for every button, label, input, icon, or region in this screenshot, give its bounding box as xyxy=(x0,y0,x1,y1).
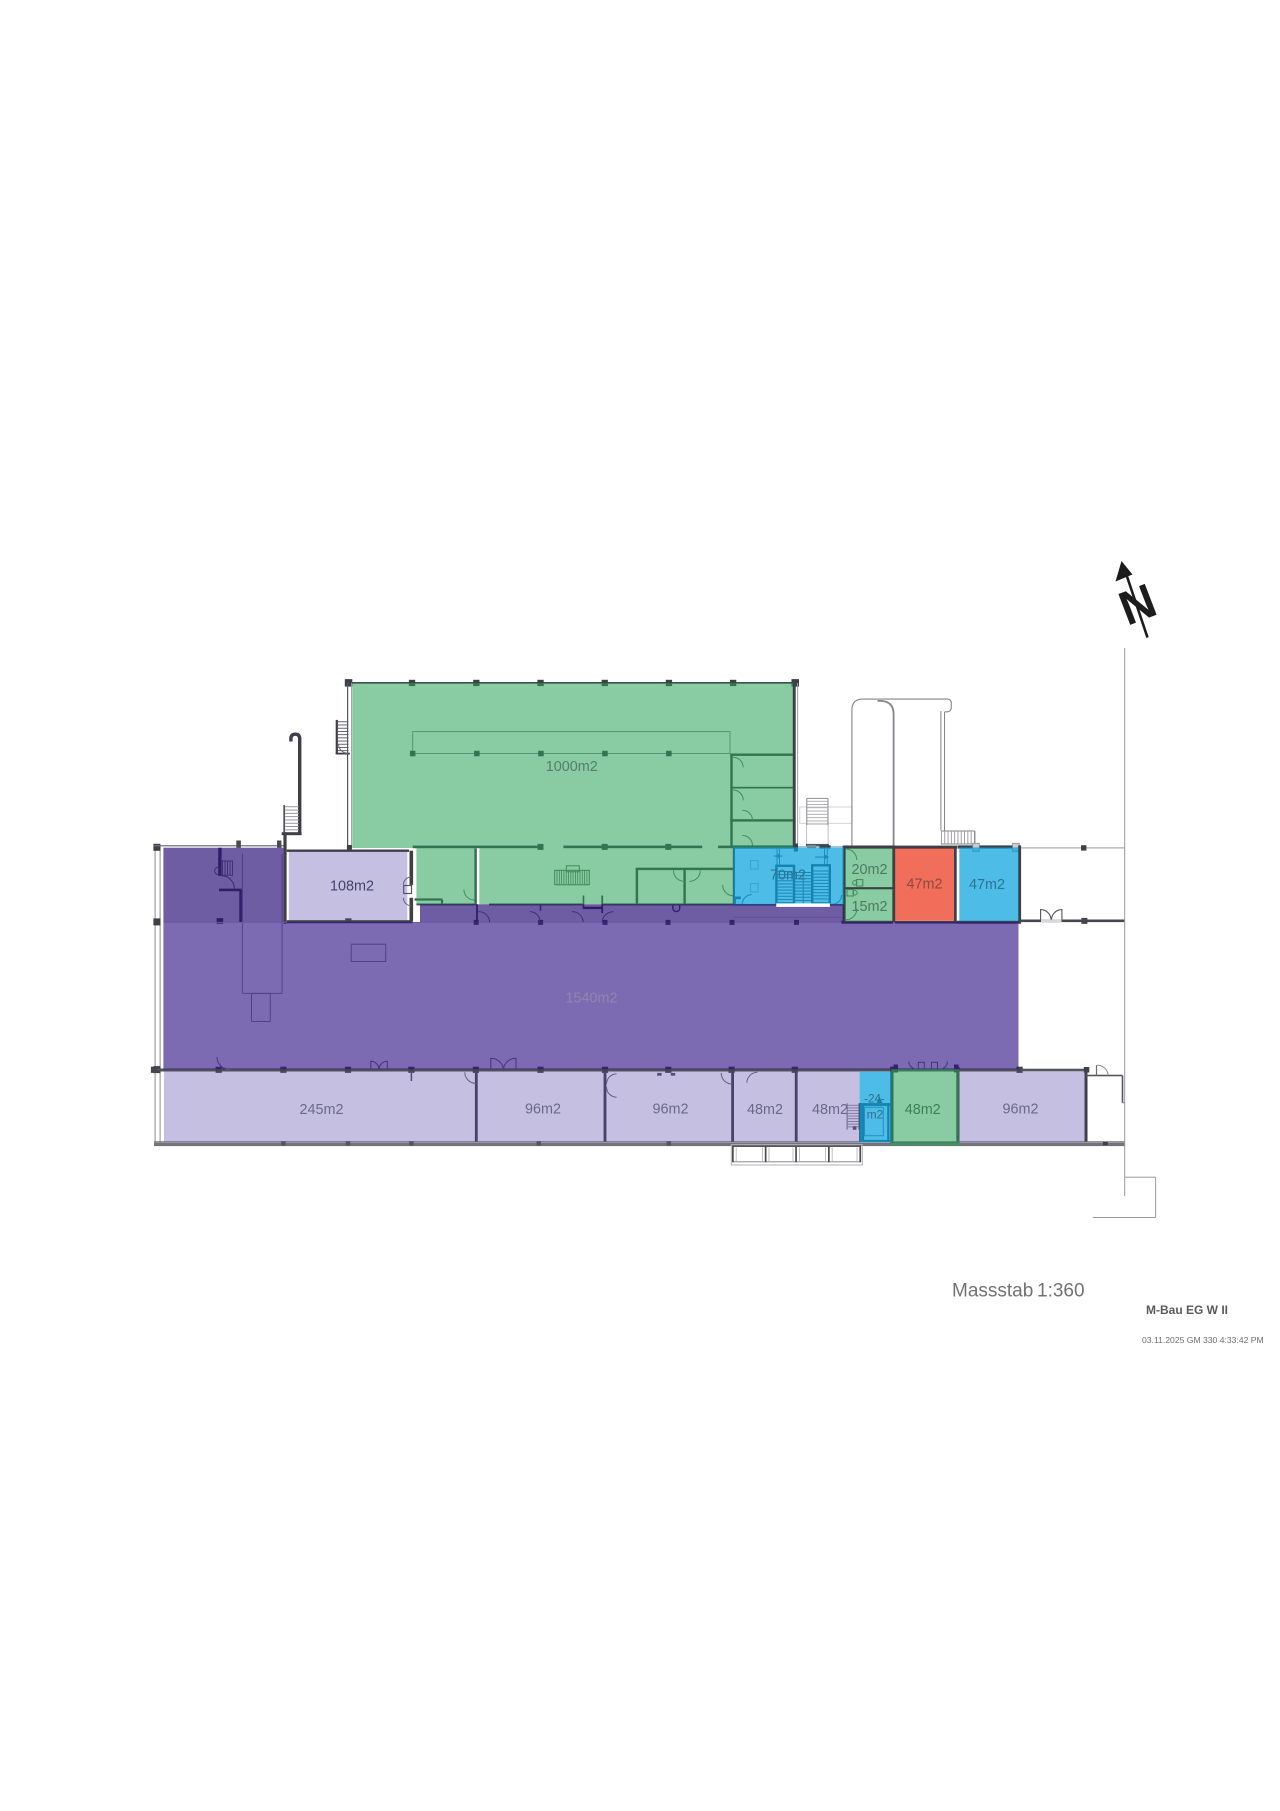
svg-text:245m2: 245m2 xyxy=(299,1102,343,1118)
svg-text:48m2: 48m2 xyxy=(812,1102,848,1118)
svg-text:70m2: 70m2 xyxy=(770,868,806,884)
svg-text:47m2: 47m2 xyxy=(907,877,943,893)
svg-text:15m2: 15m2 xyxy=(852,899,888,915)
svg-text:Massstab: Massstab xyxy=(952,1281,1033,1302)
svg-text:N: N xyxy=(1112,574,1163,636)
svg-text:1:360: 1:360 xyxy=(1037,1281,1085,1302)
svg-text:1540m2: 1540m2 xyxy=(565,991,617,1007)
svg-text:47m2: 47m2 xyxy=(969,877,1005,893)
svg-text:96m2: 96m2 xyxy=(525,1102,561,1118)
svg-text:03.11.2025 GM 330 4:33:42 PM: 03.11.2025 GM 330 4:33:42 PM xyxy=(1142,1335,1264,1345)
svg-text:96m2: 96m2 xyxy=(653,1102,689,1118)
svg-text:m2: m2 xyxy=(867,1108,884,1122)
svg-text:48m2: 48m2 xyxy=(747,1102,783,1118)
svg-text:96m2: 96m2 xyxy=(1003,1102,1039,1118)
svg-text:M-Bau EG W II: M-Bau EG W II xyxy=(1146,1303,1228,1317)
svg-text:-24-: -24- xyxy=(864,1093,885,1105)
svg-text:1000m2: 1000m2 xyxy=(546,759,598,775)
svg-text:20m2: 20m2 xyxy=(852,862,888,878)
svg-text:108m2: 108m2 xyxy=(330,879,374,895)
svg-text:48m2: 48m2 xyxy=(905,1102,941,1118)
